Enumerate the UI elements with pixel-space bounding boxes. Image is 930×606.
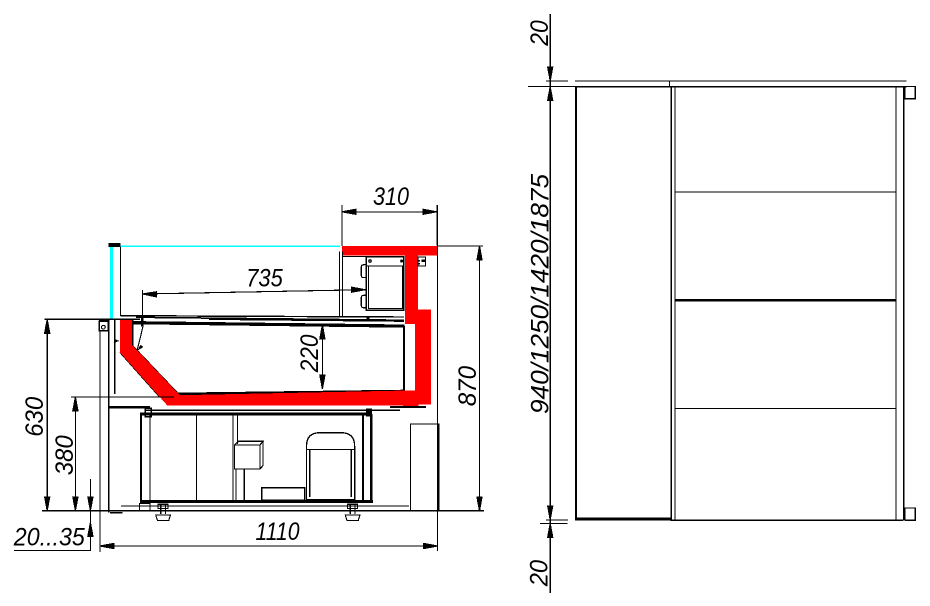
- svg-text:380: 380: [51, 435, 79, 475]
- svg-text:735: 735: [246, 265, 283, 293]
- svg-text:20: 20: [526, 560, 554, 587]
- svg-text:630: 630: [21, 397, 49, 437]
- svg-text:20...35: 20...35: [13, 523, 85, 551]
- svg-text:20: 20: [526, 20, 554, 47]
- svg-text:220: 220: [296, 334, 324, 373]
- svg-text:870: 870: [454, 366, 482, 406]
- svg-text:1110: 1110: [256, 518, 300, 546]
- svg-text:310: 310: [373, 183, 409, 211]
- svg-text:940/1250/1420/1875: 940/1250/1420/1875: [527, 174, 555, 414]
